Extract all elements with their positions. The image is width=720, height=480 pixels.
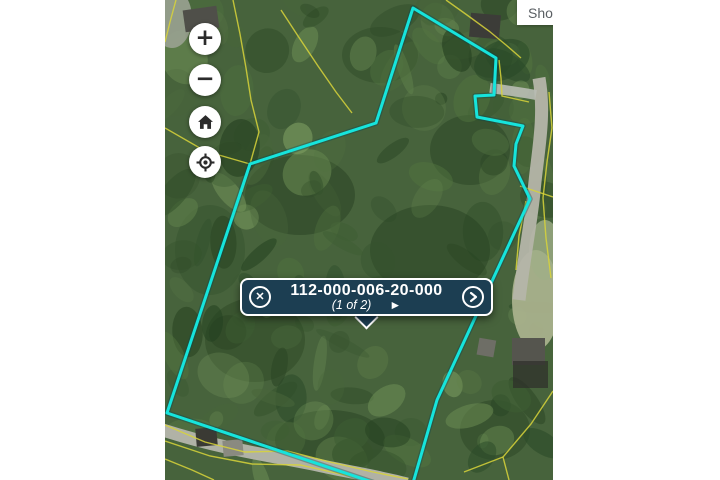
home-button[interactable] xyxy=(189,106,221,138)
aerial-map[interactable] xyxy=(165,0,553,480)
building xyxy=(469,13,501,40)
aerial-imagery xyxy=(165,0,553,480)
left-panel xyxy=(0,0,165,480)
parcel-map-viewer: + − ✕ 112-000-006-20-000 (1 of 2) ► xyxy=(0,0,720,480)
zoom-in-button[interactable]: + xyxy=(189,23,221,55)
parcel-page-indicator: (1 of 2) xyxy=(332,298,372,312)
right-panel xyxy=(553,0,720,480)
close-popup-button[interactable]: ✕ xyxy=(249,286,271,308)
parcel-popup: ✕ 112-000-006-20-000 (1 of 2) ► xyxy=(240,278,493,316)
minus-icon: − xyxy=(195,68,214,91)
chevron-right-icon xyxy=(467,291,479,303)
popup-subrow: (1 of 2) ► xyxy=(332,298,402,312)
popup-content: 112-000-006-20-000 (1 of 2) ► xyxy=(271,282,462,312)
home-icon xyxy=(197,114,214,130)
building-shadow xyxy=(513,361,548,388)
next-parcel-button[interactable] xyxy=(462,286,484,308)
close-icon: ✕ xyxy=(255,292,264,303)
plus-icon: + xyxy=(195,27,214,50)
building xyxy=(512,338,545,365)
parcel-id: 112-000-006-20-000 xyxy=(290,282,442,299)
building xyxy=(477,338,497,358)
play-triangle-icon[interactable]: ► xyxy=(389,299,401,311)
zoom-out-button[interactable]: − xyxy=(189,64,221,96)
locate-icon xyxy=(196,153,215,172)
locate-button[interactable] xyxy=(189,146,221,178)
building xyxy=(222,439,243,457)
